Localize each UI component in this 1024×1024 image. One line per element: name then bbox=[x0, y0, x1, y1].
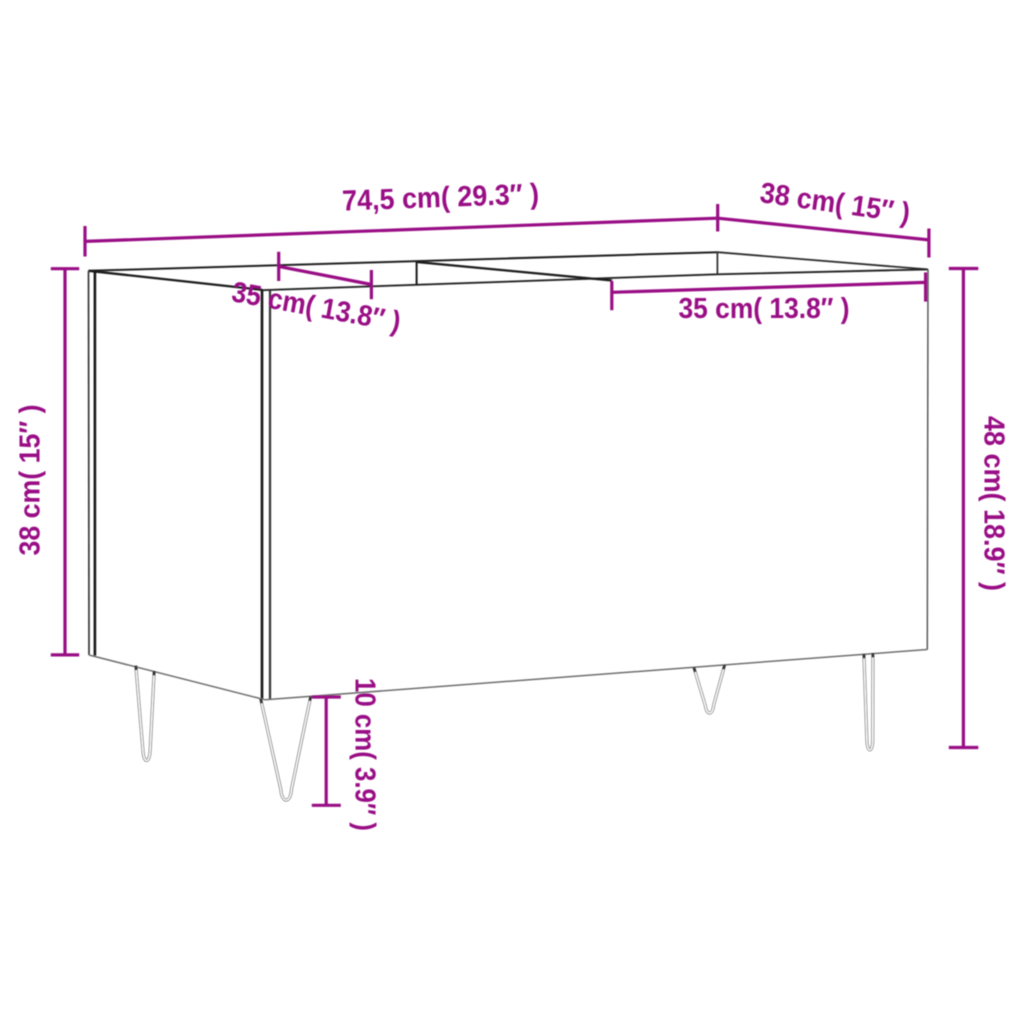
svg-text:38 cm( 15″ ): 38 cm( 15″ ) bbox=[15, 405, 47, 556]
svg-text:10 cm( 3.9″ ): 10 cm( 3.9″ ) bbox=[349, 678, 381, 831]
svg-text:38 cm( 15″ ): 38 cm( 15″ ) bbox=[758, 177, 912, 230]
svg-text:74,5 cm( 29.3″ ): 74,5 cm( 29.3″ ) bbox=[342, 178, 540, 217]
svg-text:48 cm( 18.9″ ): 48 cm( 18.9″ ) bbox=[977, 416, 1009, 591]
svg-text:35 cm( 13.8″ ): 35 cm( 13.8″ ) bbox=[679, 293, 850, 325]
